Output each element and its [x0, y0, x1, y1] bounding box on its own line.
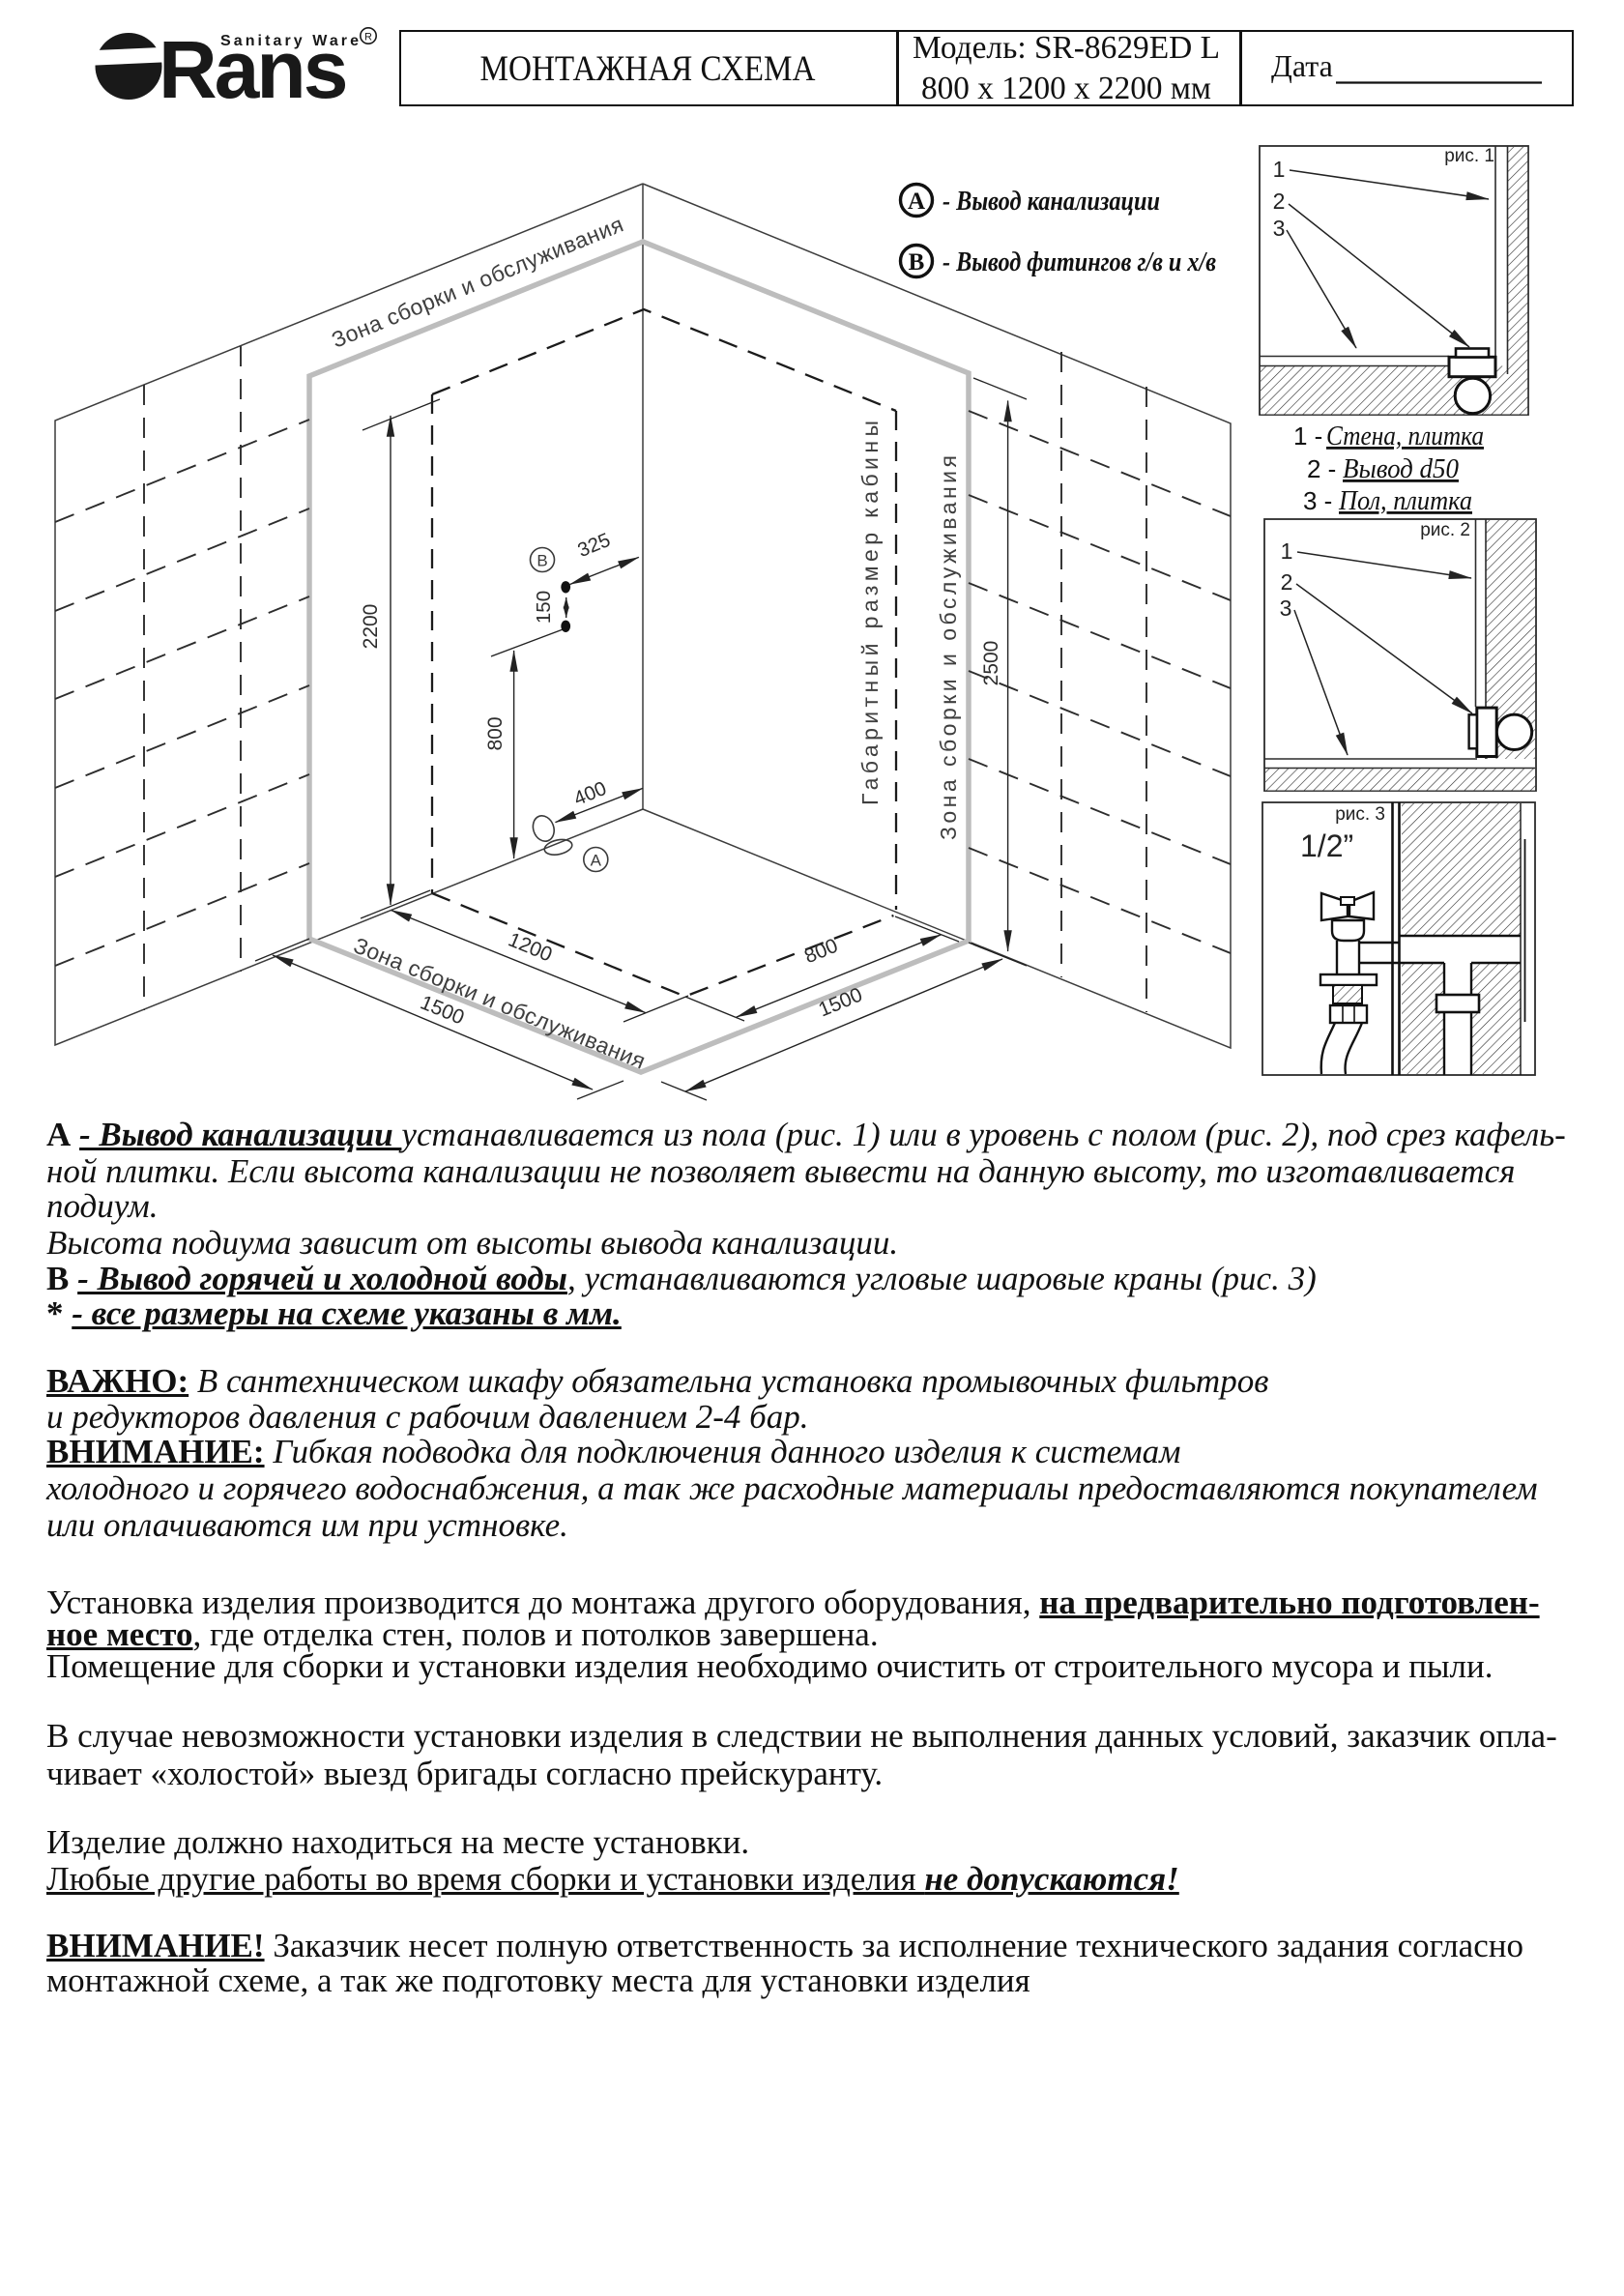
svg-text:Вывод d50: Вывод d50 — [1343, 454, 1459, 484]
svg-text:1 -: 1 - — [1293, 421, 1322, 450]
svg-text:800: 800 — [484, 716, 507, 750]
svg-text:2500: 2500 — [980, 641, 1002, 686]
svg-text:800 x 1200 x 2200 мм: 800 x 1200 x 2200 мм — [921, 71, 1211, 106]
svg-text:2: 2 — [1273, 189, 1286, 214]
svg-text:рис. 1: рис. 1 — [1444, 146, 1494, 166]
svg-text:Зона сборки и обслуживания: Зона сборки и обслуживания — [328, 211, 627, 352]
svg-text:400: 400 — [570, 777, 609, 810]
svg-text:Sanitary Ware: Sanitary Ware — [220, 33, 359, 49]
svg-text:Дата: Дата — [1271, 48, 1333, 83]
svg-text:1/2”: 1/2” — [1300, 828, 1353, 863]
svg-text:2 -: 2 - — [1307, 454, 1336, 483]
svg-text:Модель: SR-8629ED L: Модель: SR-8629ED L — [913, 30, 1220, 66]
svg-text:1: 1 — [1281, 538, 1293, 564]
svg-text:2: 2 — [1281, 569, 1293, 595]
svg-text:R: R — [364, 32, 372, 44]
svg-text:3 -: 3 - — [1303, 486, 1332, 515]
svg-text:800: 800 — [801, 935, 841, 969]
svg-text:- Вывод канализации: - Вывод канализации — [942, 187, 1160, 217]
svg-text:В: В — [909, 249, 925, 276]
svg-text:А: А — [908, 189, 925, 215]
svg-text:МОНТАЖНАЯ СХЕМА: МОНТАЖНАЯ СХЕМА — [480, 49, 816, 89]
svg-text:Зона сборки и обслуживания: Зона сборки и обслуживания — [936, 455, 961, 840]
svg-text:2200: 2200 — [360, 604, 382, 650]
svg-text:150: 150 — [533, 591, 555, 624]
svg-text:325: 325 — [574, 529, 613, 562]
svg-text:3: 3 — [1273, 216, 1286, 241]
svg-text:А: А — [591, 852, 602, 870]
svg-text:3: 3 — [1280, 596, 1292, 621]
svg-text:Габаритный размер кабины: Габаритный размер кабины — [857, 421, 883, 805]
svg-text:- Вывод фитингов г/в и х/в: - Вывод фитингов г/в и х/в — [942, 247, 1216, 277]
svg-text:В: В — [536, 552, 547, 570]
svg-text:рис. 3: рис. 3 — [1335, 804, 1385, 825]
svg-text:рис. 2: рис. 2 — [1420, 520, 1470, 540]
svg-text:Пол, плитка: Пол, плитка — [1338, 486, 1472, 516]
svg-text:Стена, плитка: Стена, плитка — [1326, 421, 1484, 451]
svg-text:1: 1 — [1273, 157, 1286, 182]
